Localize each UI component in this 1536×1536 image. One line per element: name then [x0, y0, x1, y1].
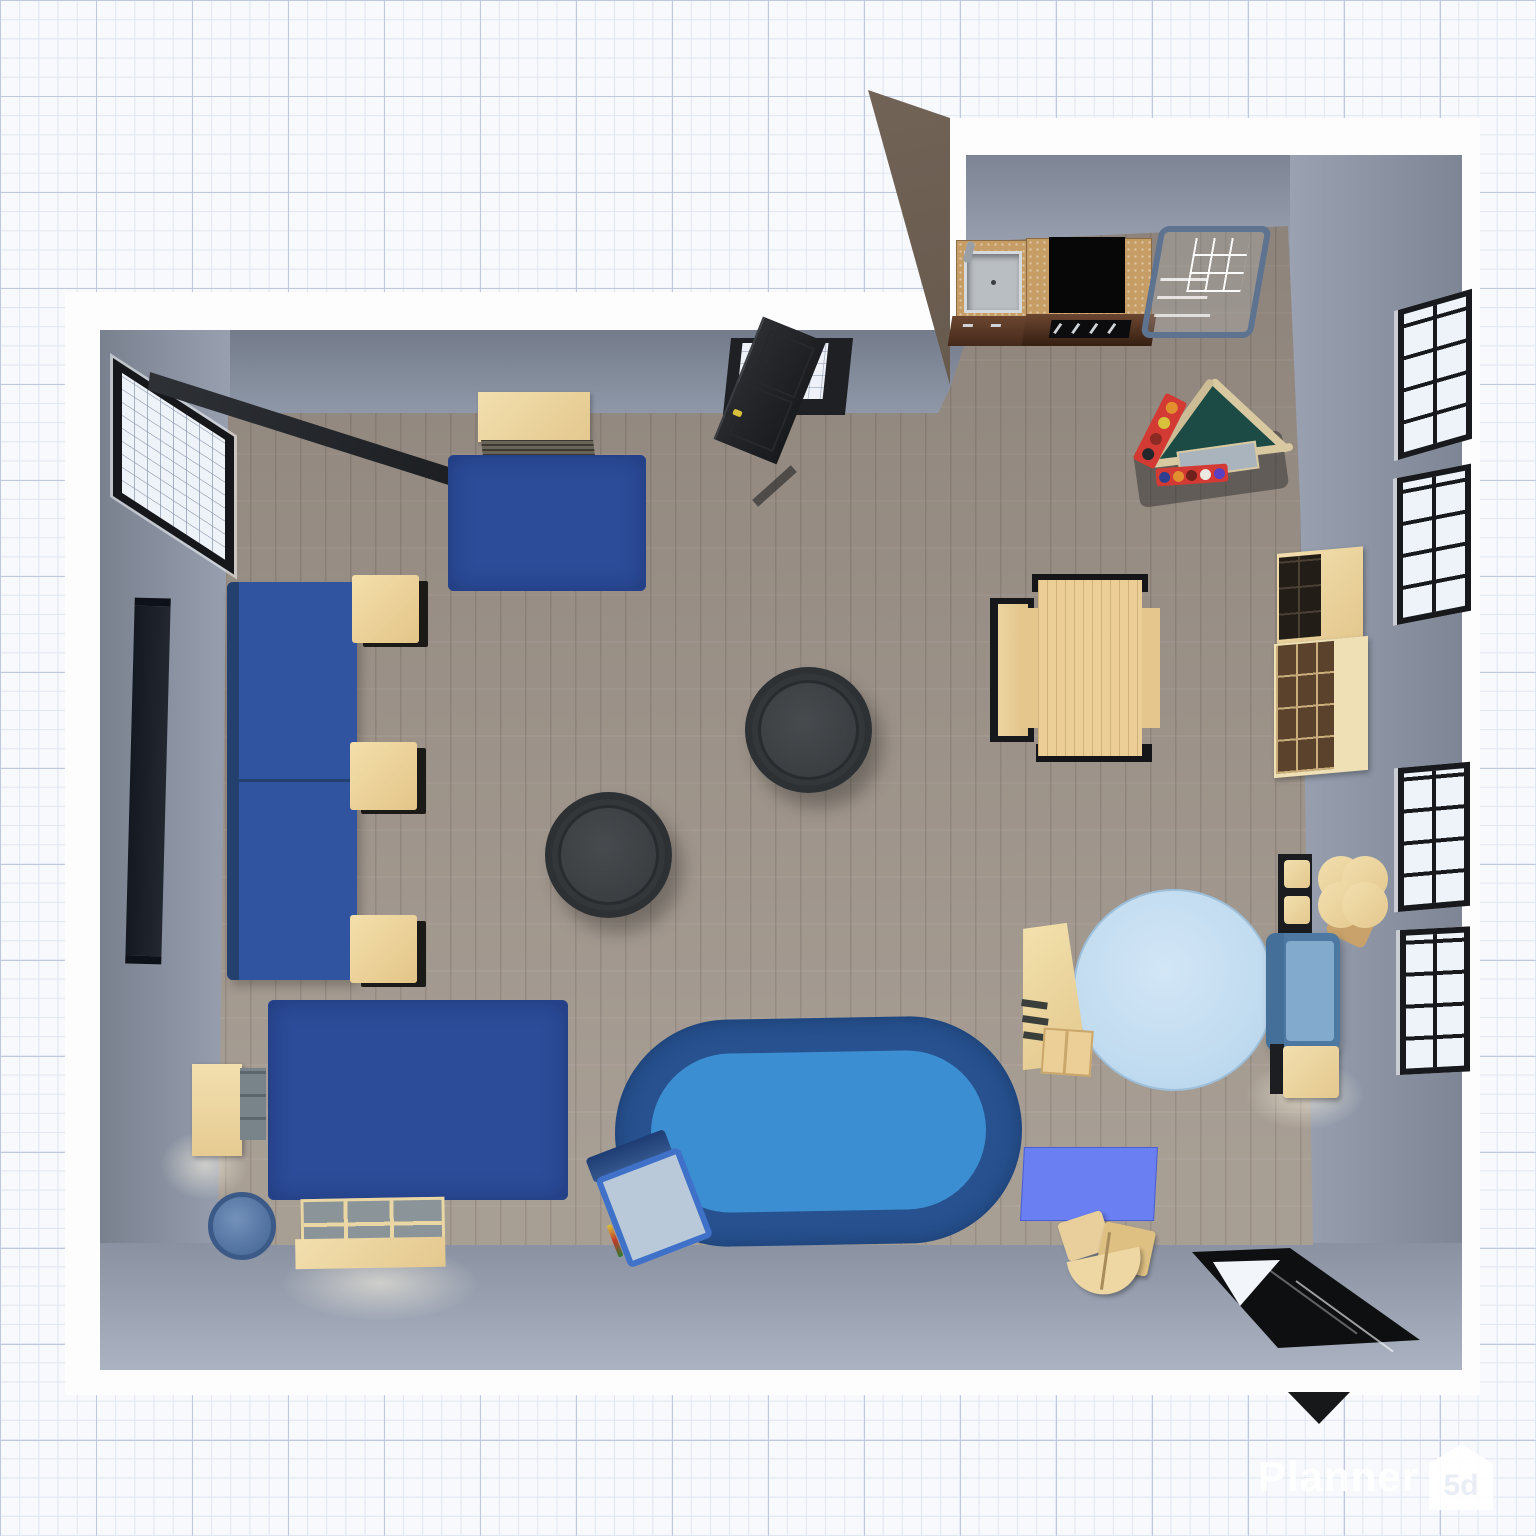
clover-chair-seat [1284, 860, 1310, 888]
wire-shelf [1154, 314, 1211, 317]
door-swing-marker [1288, 1392, 1350, 1424]
kitchen-sink-counter[interactable] [956, 240, 1028, 318]
sideboard-vents [481, 440, 595, 456]
house-logo-icon: 5d [1429, 1444, 1493, 1510]
kitchen-sink-front [948, 316, 1029, 346]
right-window-2[interactable] [1397, 464, 1471, 625]
drawer-handle [991, 324, 1001, 327]
cooktop [1049, 237, 1125, 313]
cube-cells [1276, 641, 1334, 774]
drawer-divider [1063, 1031, 1069, 1073]
wardrobe-cube-shelf[interactable] [1274, 546, 1369, 782]
sink-drain [991, 280, 996, 285]
wooden-toy[interactable] [1058, 1212, 1158, 1307]
play-mat[interactable] [1020, 1147, 1158, 1221]
sofa-left[interactable] [227, 582, 357, 980]
door-panel-line2 [728, 384, 793, 452]
wardrobe-grid [1279, 554, 1321, 640]
clover-chair-seat [1284, 896, 1310, 924]
kitchen-stove-counter[interactable] [1026, 238, 1152, 316]
bead [1140, 446, 1156, 462]
side-table-3[interactable] [350, 915, 417, 983]
loveseat[interactable] [1266, 933, 1340, 1051]
bead [1186, 469, 1198, 481]
table-top [1038, 580, 1142, 756]
dining-table[interactable] [1020, 574, 1160, 762]
toy-box-front [295, 1237, 446, 1270]
wardrobe [1277, 546, 1363, 644]
bead [1172, 470, 1184, 482]
watermark-text: Planner [1258, 1453, 1419, 1501]
rug-bottom-left[interactable] [268, 1000, 568, 1200]
loveseat-back [1266, 933, 1284, 1051]
table-leaf [1020, 608, 1040, 728]
clover-lobe [1342, 882, 1388, 928]
kitchen-stove-front [1021, 314, 1156, 346]
storage-bin[interactable] [208, 1192, 276, 1260]
pouf-2[interactable] [545, 792, 672, 918]
side-table-right[interactable] [1283, 1046, 1339, 1098]
drawer-handle [963, 324, 973, 327]
watermark: Planner 5d [1258, 1444, 1493, 1510]
planner-canvas: { "app": { "watermark": { "text": "Plann… [0, 0, 1536, 1536]
kids-bookshelf[interactable] [1007, 919, 1097, 1074]
bead [1214, 467, 1226, 479]
oval-rug-inner [650, 1049, 988, 1214]
wire-shelf [1160, 278, 1207, 281]
loveseat-seat [1286, 941, 1334, 1041]
side-table-2[interactable] [350, 742, 417, 810]
sink-basin [964, 251, 1022, 313]
wire-rack[interactable] [1140, 226, 1272, 338]
bead [1156, 415, 1172, 431]
right-window-1[interactable] [1398, 289, 1472, 460]
rug-top[interactable] [448, 455, 646, 591]
table-leaf [1140, 608, 1160, 728]
wall-shelf-interior [240, 1068, 266, 1140]
bookshelf-drawer [1041, 1028, 1094, 1077]
round-rug[interactable] [1073, 889, 1275, 1091]
cube-organizer [1274, 636, 1368, 778]
right-window-3[interactable] [1398, 762, 1470, 912]
play-triangle[interactable] [1128, 368, 1313, 518]
right-window-4[interactable] [1400, 926, 1470, 1075]
wire-shelf [1157, 296, 1208, 299]
side-table-right-shadow [1270, 1044, 1284, 1094]
bead [1200, 468, 1212, 480]
side-table-1[interactable] [352, 575, 419, 643]
pouf-1[interactable] [745, 667, 872, 793]
bead [1159, 471, 1171, 483]
sofa-seam [237, 779, 357, 782]
sideboard-top[interactable] [478, 392, 590, 442]
wire-grid [1186, 238, 1250, 292]
bead [1148, 431, 1164, 447]
watermark-logo-text: 5d [1444, 1468, 1479, 1510]
wall-shelf-left[interactable] [192, 1064, 242, 1156]
toy-box[interactable] [294, 1197, 445, 1270]
bead [1164, 400, 1180, 416]
